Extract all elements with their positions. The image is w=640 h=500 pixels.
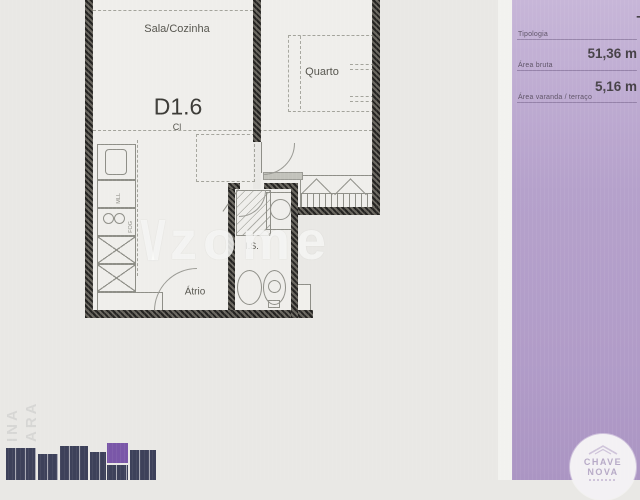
dashed-guide: [93, 10, 253, 11]
room-label-closet: Cl: [173, 122, 182, 132]
door-leaf-bedroom: [261, 142, 262, 173]
dashed-guide: [137, 140, 138, 276]
shelf-mark: [350, 64, 374, 65]
wall-segment: [253, 0, 261, 142]
typology-value: T1: [636, 13, 640, 30]
cooktop-burner: [103, 213, 114, 224]
faint-vertical-text: INA ARA: [4, 358, 40, 442]
wardrobe-ticks: [301, 193, 372, 207]
field-label-balcony-area: Área varanda / terraço: [518, 94, 592, 101]
appliance-box: [97, 236, 136, 264]
zome-watermark: \/zome: [140, 210, 332, 272]
building-block: [60, 446, 88, 480]
wall-segment: [372, 0, 380, 215]
room-label-bedroom: Quarto: [305, 66, 339, 78]
building-block: [38, 454, 58, 480]
field-label-gross-area: Área bruta: [518, 62, 553, 69]
roof-icon: [586, 443, 620, 457]
bed-pillow-line: [300, 36, 301, 109]
wardrobe: [300, 175, 373, 208]
building-block: [6, 448, 36, 480]
wall-segment: [228, 183, 240, 189]
chave-nova-logo: CHAVE NOVA: [570, 434, 636, 500]
site-plan-thumbnail: [0, 438, 160, 480]
cooktop-burner: [114, 213, 125, 224]
logo-tagline-dots: [589, 479, 617, 481]
zome-watermark-mark: \/: [140, 211, 162, 271]
field-label-typology: Tipologia: [518, 31, 548, 38]
bidet-bowl: [268, 280, 281, 293]
cooktop-label: FOG: [128, 221, 134, 233]
logo-line2: NOVA: [587, 467, 618, 477]
balcony-area-value: 5,16 m: [595, 79, 637, 94]
field-divider: [517, 102, 637, 103]
wall-segment: [85, 310, 313, 318]
building-block: [107, 465, 128, 480]
building-block: [90, 452, 106, 480]
field-divider: [517, 70, 637, 71]
room-label-living: Sala/Cozinha: [144, 23, 209, 35]
field-divider: [517, 39, 637, 40]
gross-area-value: 51,36 m: [587, 46, 637, 61]
page-fold-strip: [498, 0, 512, 480]
dashed-guide: [93, 130, 372, 131]
kitchen-sink-basin: [105, 149, 127, 175]
room-label-hall: Átrio: [185, 287, 206, 298]
dishwasher-label: MLL: [116, 193, 122, 204]
faint-vertical-text-line: ARA: [23, 358, 40, 442]
info-panel: T1 Tipologia 51,36 m Área bruta 5,16 m Á…: [512, 0, 640, 480]
shelf-mark: [350, 69, 374, 70]
shelf-mark: [350, 96, 374, 97]
unit-label: D1.6: [154, 94, 203, 121]
closet-outline: [196, 134, 255, 182]
logo-line1: CHAVE: [584, 457, 622, 467]
highlighted-unit: [107, 443, 128, 463]
wall-segment: [85, 0, 93, 318]
bidet-tap: [268, 300, 280, 308]
kitchen-counter: [97, 292, 163, 312]
appliance-box: [97, 264, 136, 292]
toilet: [237, 270, 262, 305]
zome-watermark-text: zome: [170, 211, 332, 271]
building-block: [130, 450, 156, 480]
shelf-mark: [350, 101, 374, 102]
exterior-shaft: [296, 284, 311, 312]
faint-vertical-text-line: INA: [4, 358, 21, 442]
